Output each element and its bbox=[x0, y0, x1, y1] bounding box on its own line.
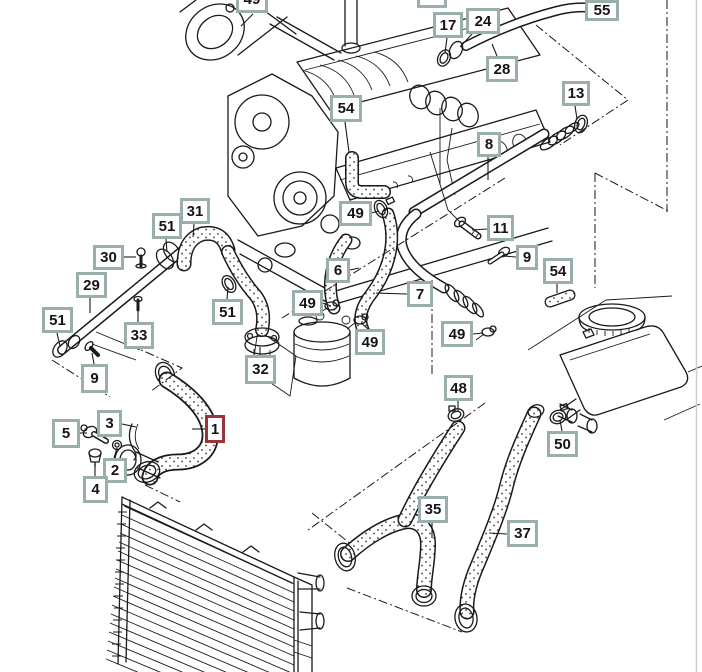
part-label-13[interactable]: 13 bbox=[562, 81, 590, 106]
intake-rings bbox=[406, 82, 481, 129]
part-label-33[interactable]: 33 bbox=[124, 322, 154, 349]
part-label-49[interactable]: 49 bbox=[292, 290, 323, 316]
part-54-stub bbox=[550, 295, 570, 302]
part-label-30[interactable]: 30 bbox=[93, 245, 124, 270]
part-label-8[interactable]: 8 bbox=[477, 132, 501, 157]
part-label-37[interactable]: 37 bbox=[507, 520, 538, 547]
radiator-fins bbox=[106, 506, 294, 672]
screw-9-left bbox=[83, 340, 98, 355]
hose-37 bbox=[453, 403, 546, 634]
bolt-30 bbox=[136, 248, 146, 268]
part-label-29[interactable]: 29 bbox=[76, 272, 107, 298]
part-label-5[interactable]: 5 bbox=[52, 419, 80, 448]
part-label-blank[interactable] bbox=[417, 0, 447, 8]
part-label-51[interactable]: 51 bbox=[152, 213, 182, 239]
part-label-50[interactable]: 50 bbox=[547, 431, 578, 457]
part-label-32[interactable]: 32 bbox=[245, 355, 276, 384]
part-label-31[interactable]: 31 bbox=[180, 198, 210, 224]
expansion-tank bbox=[528, 296, 702, 433]
part-label-49[interactable]: 49 bbox=[355, 329, 385, 355]
radiator bbox=[106, 497, 324, 672]
part-label-51[interactable]: 51 bbox=[212, 299, 243, 325]
hose-1 bbox=[131, 359, 210, 486]
part-label-55[interactable]: 55 bbox=[585, 0, 619, 21]
part-label-35[interactable]: 35 bbox=[418, 496, 448, 523]
seal-ring-17 bbox=[435, 48, 453, 68]
part-label-11[interactable]: 11 bbox=[487, 215, 514, 241]
part-label-7[interactable]: 7 bbox=[407, 281, 433, 307]
part-label-9[interactable]: 9 bbox=[516, 245, 538, 270]
elbow-hose-31 bbox=[184, 233, 228, 264]
part-label-54[interactable]: 54 bbox=[330, 95, 362, 122]
part-label-6[interactable]: 6 bbox=[326, 258, 350, 283]
bolt-33 bbox=[134, 297, 142, 311]
screw-9-right bbox=[490, 245, 511, 262]
part-label-51[interactable]: 51 bbox=[42, 307, 73, 333]
part-label-49[interactable]: 49 bbox=[236, 0, 268, 13]
part-label-54[interactable]: 54 bbox=[543, 258, 573, 284]
parts-diagram: 4917245528135483151491130954629749515133… bbox=[0, 0, 702, 672]
part-label-9[interactable]: 9 bbox=[81, 364, 108, 393]
part-label-49[interactable]: 49 bbox=[441, 321, 473, 347]
part-label-48[interactable]: 48 bbox=[444, 375, 473, 401]
part-label-3[interactable]: 3 bbox=[97, 410, 122, 437]
part-label-17[interactable]: 17 bbox=[433, 12, 463, 38]
part-label-1[interactable]: 1 bbox=[205, 415, 225, 443]
part-label-4[interactable]: 4 bbox=[83, 476, 108, 503]
part-label-28[interactable]: 28 bbox=[486, 56, 518, 82]
part-label-24[interactable]: 24 bbox=[466, 8, 500, 34]
part-label-49[interactable]: 49 bbox=[339, 201, 372, 226]
clamp-48 bbox=[446, 406, 465, 423]
